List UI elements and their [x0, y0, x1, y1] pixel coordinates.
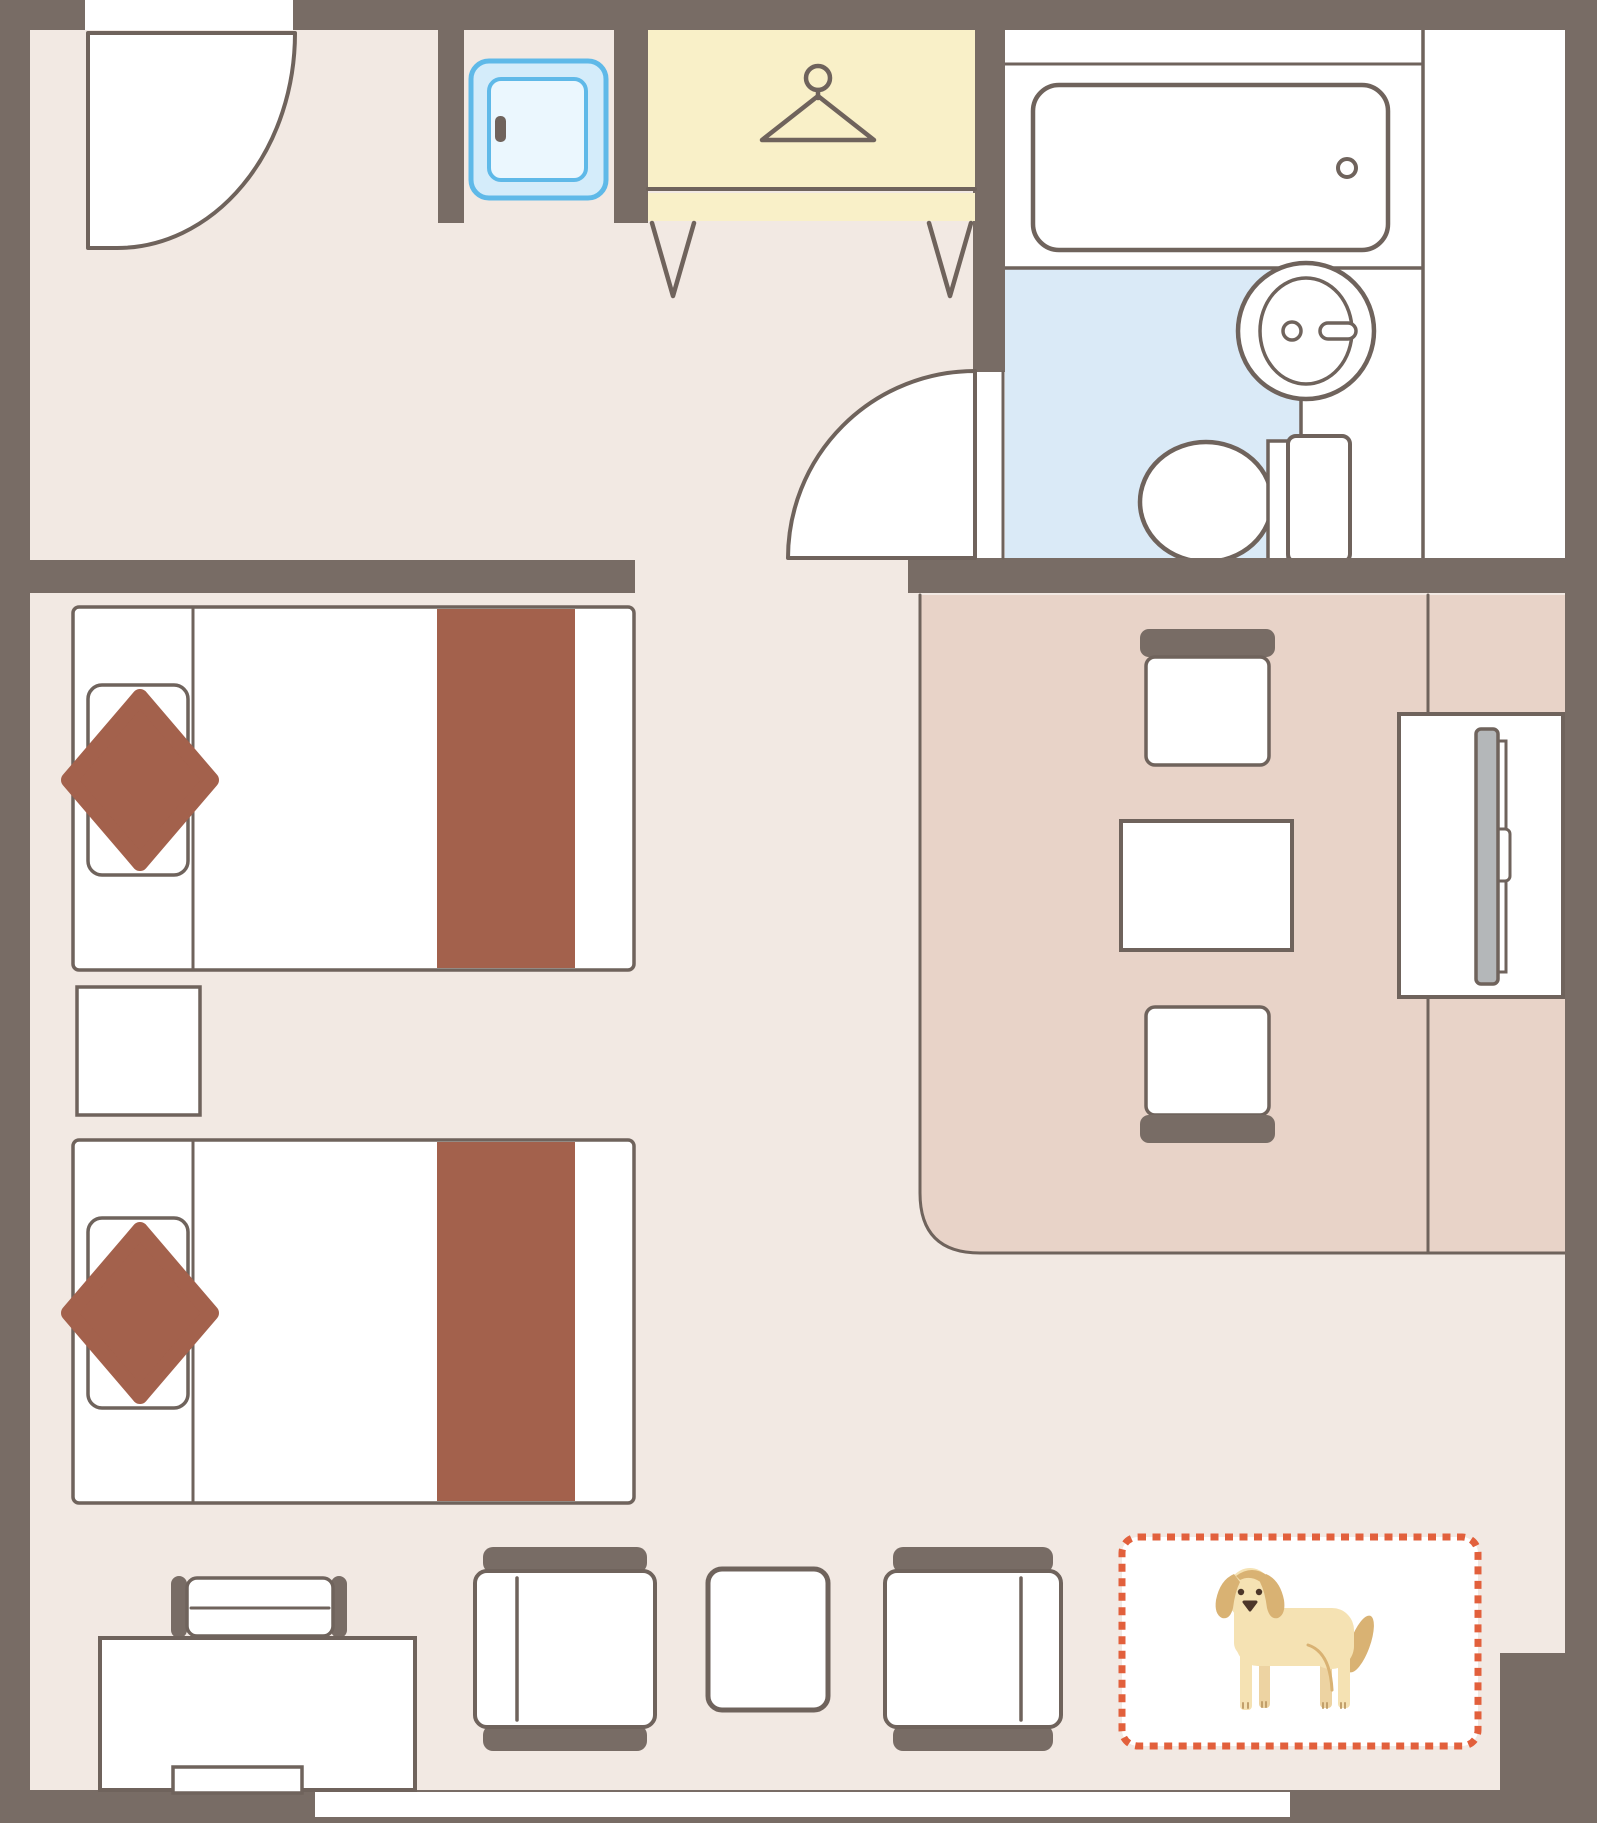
- desk-chair-armrest-left: [171, 1576, 187, 1638]
- tv-unit: [1399, 714, 1563, 997]
- washbasin-tap: [1320, 323, 1356, 339]
- chair-backrest: [1140, 629, 1275, 657]
- bed-runner: [437, 609, 575, 968]
- bathtub-drain: [1338, 159, 1356, 177]
- wall-stub-left-of-fridge: [438, 30, 464, 223]
- bathroom: [1005, 30, 1565, 562]
- washbasin-drain: [1283, 322, 1301, 340]
- toilet-seat-hinge: [1268, 441, 1288, 561]
- wall-bedroom-top: [30, 560, 635, 593]
- chair-backrest: [1140, 1115, 1275, 1143]
- wall-stub-right-of-fridge: [614, 30, 648, 223]
- nightstand: [77, 987, 200, 1115]
- dog-leg: [1338, 1650, 1350, 1708]
- dog-eye: [1238, 1589, 1244, 1595]
- washbasin: [1238, 263, 1374, 399]
- toilet: [1140, 436, 1350, 562]
- luggage-rack-rail: [648, 193, 975, 221]
- dog-leg: [1240, 1648, 1252, 1710]
- wall-corner-step: [1500, 1653, 1597, 1823]
- side-table: [708, 1569, 828, 1710]
- bed-runner: [437, 1142, 575, 1501]
- entrance-opening: [85, 0, 293, 30]
- dining-table: [1121, 821, 1292, 950]
- tv-screen: [1476, 729, 1498, 984]
- living-dining-area: [920, 595, 1565, 1253]
- twin-bed-2: [69, 1140, 634, 1503]
- dog-eye: [1256, 1589, 1262, 1595]
- pet-area: [1122, 1537, 1478, 1746]
- refrigerator-icon: [471, 61, 606, 198]
- desk-drawer: [173, 1767, 302, 1793]
- chair-seat: [1146, 1007, 1269, 1115]
- window: [315, 1792, 1290, 1817]
- bathtub: [1033, 85, 1388, 250]
- lounge-chair-left: [475, 1547, 655, 1751]
- toilet-tank: [1288, 436, 1350, 562]
- chair-body: [885, 1571, 1061, 1727]
- wall-right: [1565, 0, 1597, 1823]
- bathroom-door-leaf: [973, 372, 1005, 558]
- dining-chair-top: [1140, 629, 1275, 765]
- refrigerator-handle: [495, 116, 506, 142]
- dining-chair-bottom: [1140, 1007, 1275, 1143]
- wall-bathroom-left: [973, 30, 1005, 372]
- chair-seat: [1146, 657, 1269, 765]
- luggage-rack-top: [648, 30, 975, 188]
- wall-dining-top: [908, 558, 1565, 593]
- twin-bed-1: [69, 607, 634, 970]
- floor-plan-image: Pet-friendly twin hotel room floor plan: [0, 0, 1597, 1823]
- toilet-bowl: [1140, 442, 1272, 562]
- desk-chair: [171, 1576, 347, 1638]
- wall-left: [0, 0, 30, 1823]
- lounge-chair-right: [885, 1547, 1061, 1751]
- chair-body: [475, 1571, 655, 1727]
